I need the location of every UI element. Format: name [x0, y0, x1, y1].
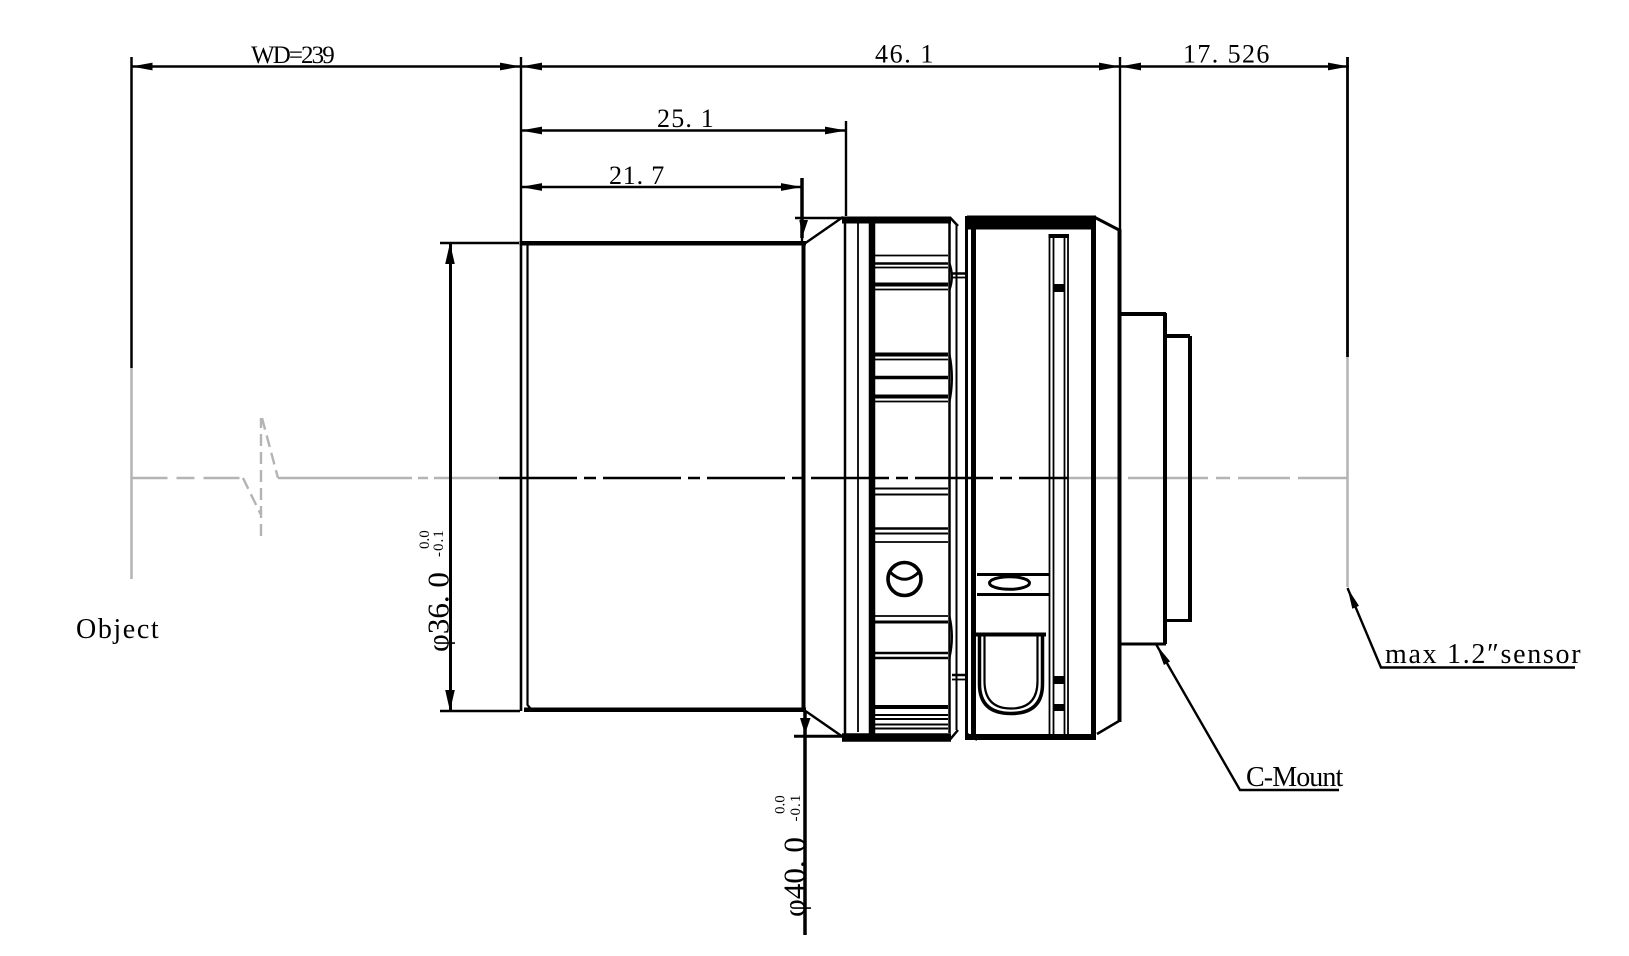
- svg-text:WD=239: WD=239: [251, 42, 334, 69]
- svg-text:-0.1: -0.1: [788, 794, 804, 822]
- svg-text:-0.1: -0.1: [431, 529, 447, 557]
- svg-text:max 1.2″sensor: max 1.2″sensor: [1385, 639, 1582, 670]
- svg-text:25. 1: 25. 1: [657, 104, 715, 133]
- svg-text:φ40. 0: φ40. 0: [777, 837, 812, 917]
- svg-text:Object: Object: [76, 614, 160, 645]
- svg-text:φ36. 0: φ36. 0: [421, 572, 456, 652]
- svg-text:0.0: 0.0: [773, 795, 789, 814]
- svg-text:C-Mount: C-Mount: [1246, 762, 1343, 793]
- svg-text:17. 526: 17. 526: [1183, 40, 1271, 69]
- svg-text:46. 1: 46. 1: [875, 40, 935, 69]
- svg-text:21. 7: 21. 7: [609, 161, 665, 190]
